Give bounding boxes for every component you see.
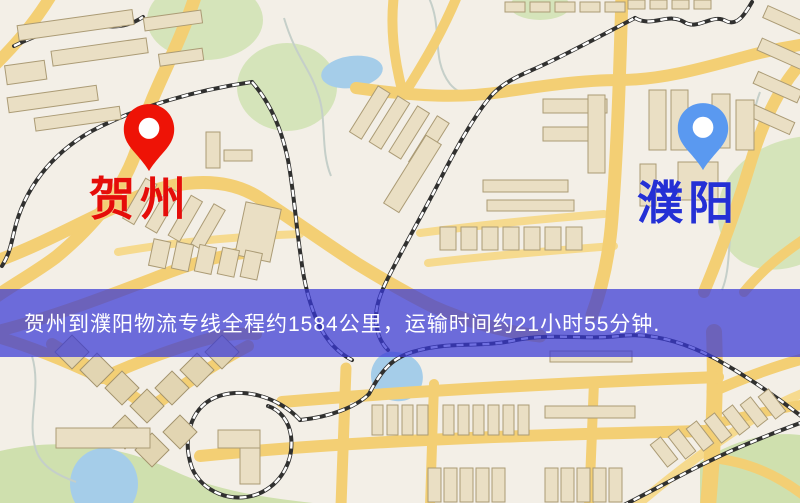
destination-city-label: 濮阳	[626, 180, 750, 226]
map-background	[0, 0, 800, 503]
route-info-text: 贺州到濮阳物流专线全程约1584公里，运输时间约21小时55分钟.	[0, 308, 660, 338]
route-info-banner: 贺州到濮阳物流专线全程约1584公里，运输时间约21小时55分钟.	[0, 289, 800, 357]
map-viewport[interactable]: 贺州 濮阳 贺州到濮阳物流专线全程约1584公里，运输时间约21小时55分钟.	[0, 0, 800, 503]
origin-city-label: 贺州	[78, 176, 202, 222]
origin-pin-icon[interactable]	[122, 103, 176, 172]
destination-pin-icon[interactable]	[676, 102, 730, 171]
